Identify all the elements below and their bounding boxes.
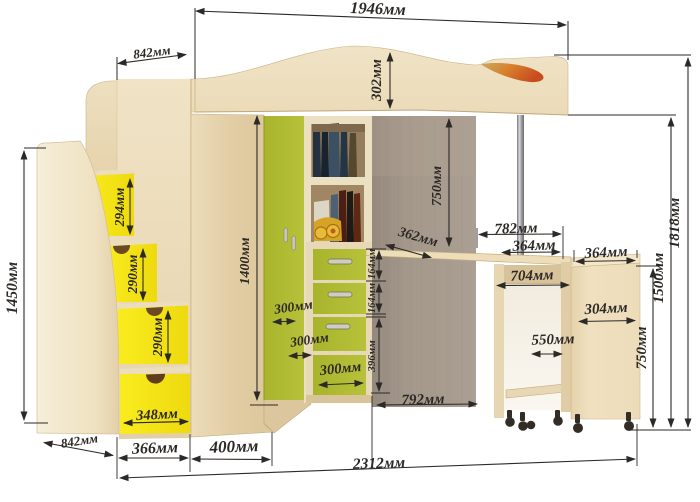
svg-text:290мм: 290мм bbox=[125, 255, 140, 295]
svg-text:366мм: 366мм bbox=[131, 439, 179, 458]
svg-text:396мм: 396мм bbox=[366, 340, 378, 373]
svg-text:1450мм: 1450мм bbox=[4, 262, 21, 315]
svg-text:290мм: 290мм bbox=[150, 318, 165, 358]
svg-text:750мм: 750мм bbox=[634, 326, 650, 369]
svg-text:792мм: 792мм bbox=[401, 391, 445, 408]
svg-text:1400мм: 1400мм bbox=[238, 237, 253, 285]
svg-text:704мм: 704мм bbox=[510, 267, 554, 284]
svg-text:550мм: 550мм bbox=[531, 331, 575, 348]
svg-text:164мм: 164мм bbox=[367, 249, 378, 279]
svg-text:2312мм: 2312мм bbox=[352, 454, 406, 473]
svg-text:302мм: 302мм bbox=[369, 59, 385, 102]
svg-text:304мм: 304мм bbox=[583, 300, 628, 318]
svg-text:750мм: 750мм bbox=[430, 166, 445, 207]
svg-text:364мм: 364мм bbox=[583, 244, 628, 262]
svg-text:400мм: 400мм bbox=[208, 436, 259, 457]
svg-text:1500мм: 1500мм bbox=[651, 253, 667, 304]
svg-text:294мм: 294мм bbox=[112, 188, 127, 228]
svg-text:782мм: 782мм bbox=[494, 220, 538, 237]
svg-text:1946мм: 1946мм bbox=[350, 0, 406, 19]
svg-text:164мм: 164мм bbox=[367, 283, 378, 313]
svg-text:1818мм: 1818мм bbox=[667, 198, 683, 249]
